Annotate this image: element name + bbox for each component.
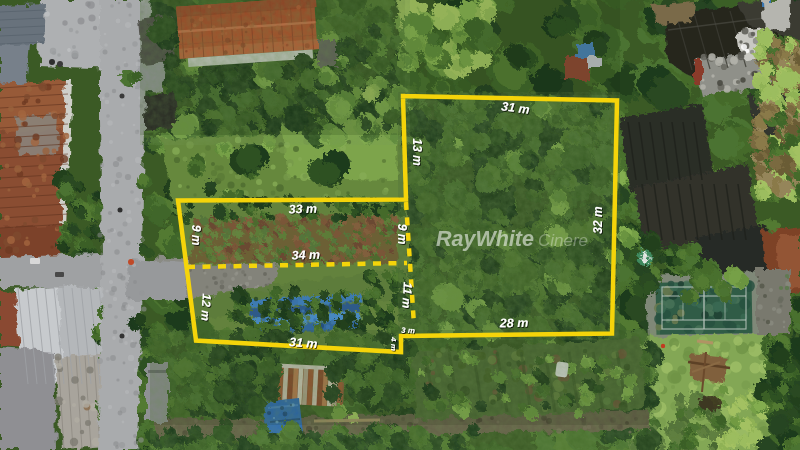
svg-text:13 m: 13 m [410,138,424,166]
svg-text:3 m: 3 m [401,326,415,335]
svg-text:12 m: 12 m [198,293,213,321]
svg-text:4 m: 4 m [389,336,398,351]
svg-text:9 m: 9 m [189,225,203,246]
svg-text:34 m: 34 m [291,248,320,263]
svg-text:28 m: 28 m [499,316,529,331]
svg-text:9 m: 9 m [395,224,409,245]
svg-text:RayWhite: RayWhite [436,227,534,251]
svg-text:32 m: 32 m [591,206,605,234]
svg-text:33 m: 33 m [288,202,317,217]
svg-text:31 m: 31 m [289,335,318,351]
svg-text:11 m: 11 m [399,282,414,309]
svg-text:Cinere: Cinere [538,231,588,250]
